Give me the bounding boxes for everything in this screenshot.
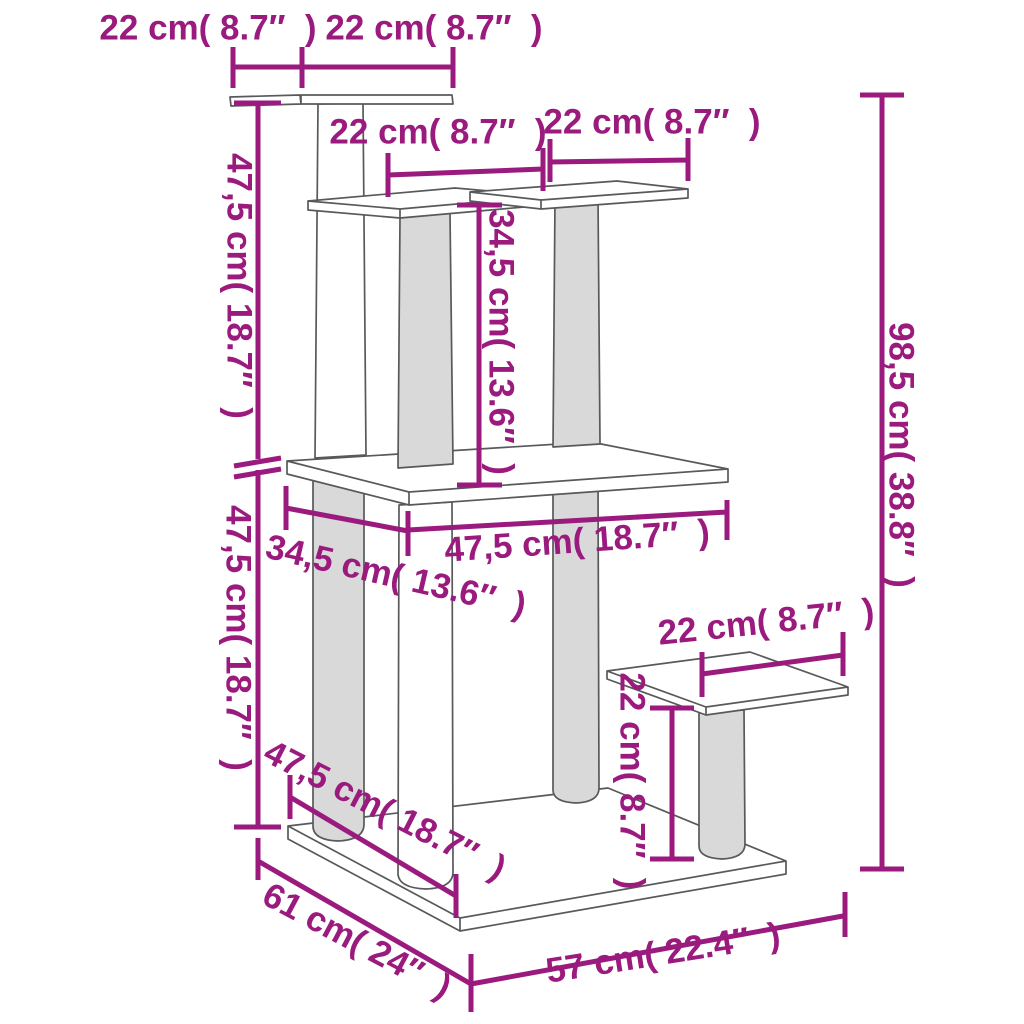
- dim-label-step-post-height: 22 cm( 8.7″ ): [615, 672, 650, 889]
- dim-label-mid-board-width: 22 cm( 8.7″ ): [329, 115, 546, 150]
- diagram-canvas: 22 cm( 8.7″ ) 22 cm( 8.7″ ) 47,5 cm( 18.…: [0, 0, 1024, 1024]
- top-platform-right: [301, 95, 453, 104]
- dim-label-upper-section-height: 47,5 cm( 18.7″ ): [222, 153, 257, 419]
- dim-label-top-platform-depth: 22 cm( 8.7″ ): [99, 11, 316, 46]
- dim-label-lower-section-height: 47,5 cm( 18.7″ ): [221, 505, 256, 771]
- dim-label-upper-right-board-width: 22 cm( 8.7″ ): [543, 105, 760, 140]
- post-upper-mid: [398, 213, 453, 468]
- dim-line-top-platform: [233, 47, 453, 88]
- dim-label-top-platform-width: 22 cm( 8.7″ ): [325, 11, 542, 46]
- step-post: [699, 710, 745, 859]
- product-dimension-drawing: [0, 0, 1024, 1024]
- post-upper-top: [315, 103, 366, 458]
- dim-line-upper-right-board: [550, 138, 688, 182]
- dim-label-total-height: 98,5 cm( 38.8″ ): [884, 322, 919, 588]
- post-upper-right: [553, 196, 600, 447]
- dim-label-middle-post-height: 34,5 cm( 13.6″ ): [484, 209, 519, 475]
